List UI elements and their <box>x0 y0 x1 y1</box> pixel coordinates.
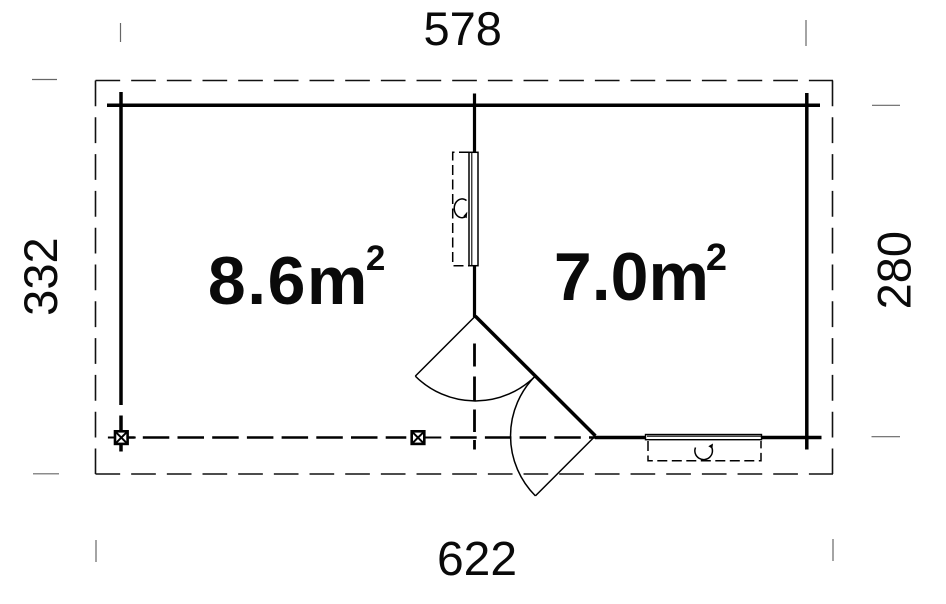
svg-text:578: 578 <box>423 2 501 55</box>
svg-text:8.6m2: 8.6m2 <box>208 239 387 319</box>
svg-text:622: 622 <box>437 533 517 586</box>
svg-text:280: 280 <box>867 231 920 309</box>
svg-text:7.0m2: 7.0m2 <box>554 237 727 315</box>
svg-text:332: 332 <box>14 237 67 315</box>
